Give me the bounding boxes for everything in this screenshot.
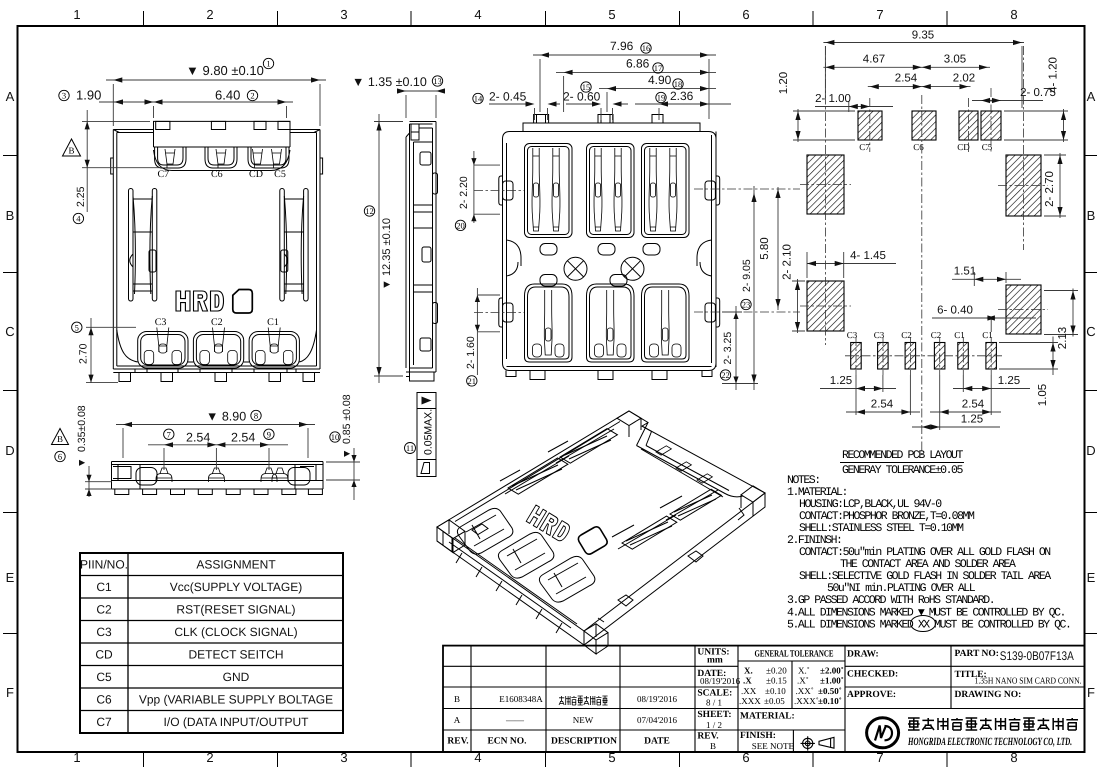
svg-text:C7: C7 <box>96 715 112 729</box>
svg-text:C: C <box>1086 324 1095 339</box>
svg-text:S139-0B07F13A: S139-0B07F13A <box>1000 649 1075 663</box>
svg-text:2.25: 2.25 <box>75 186 87 207</box>
svg-text:F: F <box>6 685 14 700</box>
svg-text:FINISH:: FINISH: <box>740 731 776 741</box>
svg-text:DRAWING NO:: DRAWING NO: <box>955 690 1022 700</box>
svg-text:DESCRIPTION: DESCRIPTION <box>551 737 617 747</box>
svg-text:X.: X. <box>744 666 753 676</box>
svg-text:4- 1.20: 4- 1.20 <box>1048 57 1060 93</box>
svg-text:C6: C6 <box>211 169 223 180</box>
svg-text:CHECKED:: CHECKED: <box>847 670 898 680</box>
svg-text:2- 0.45: 2- 0.45 <box>489 90 527 104</box>
svg-text:D: D <box>5 443 14 458</box>
svg-text:2: 2 <box>206 750 213 765</box>
svg-text:C1: C1 <box>267 317 279 328</box>
svg-text:08/19'2016: 08/19'2016 <box>700 676 741 686</box>
svg-text:7.96: 7.96 <box>610 39 634 53</box>
svg-text:C2: C2 <box>211 317 223 328</box>
svg-text:1.25: 1.25 <box>998 375 1020 387</box>
svg-text:C3: C3 <box>155 317 167 328</box>
svg-text:8: 8 <box>1010 7 1017 22</box>
svg-text:C5: C5 <box>274 169 286 180</box>
svg-text:0.05MAX.: 0.05MAX. <box>423 409 435 455</box>
svg-text:CD: CD <box>95 648 113 662</box>
svg-text:REV.: REV. <box>447 737 468 747</box>
svg-text:3: 3 <box>62 91 66 101</box>
svg-text:E1608348A: E1608348A <box>499 694 543 704</box>
svg-text:2- 2.10: 2- 2.10 <box>782 244 794 280</box>
svg-text:±0.10˚: ±0.10˚ <box>818 696 842 706</box>
svg-text:X.˚: X.˚ <box>798 666 810 676</box>
svg-text:7: 7 <box>876 7 883 22</box>
svg-text:Vcc(SUPPLY VOLTAGE): Vcc(SUPPLY VOLTAGE) <box>170 580 302 594</box>
svg-text:21: 21 <box>468 376 477 386</box>
svg-text:▼ 1.35 ±0.10: ▼ 1.35 ±0.10 <box>352 75 427 89</box>
svg-text:B: B <box>68 146 74 156</box>
svg-text:B: B <box>6 208 15 223</box>
svg-text:±0.15: ±0.15 <box>766 676 787 686</box>
svg-text:6: 6 <box>742 7 749 22</box>
svg-text:DRAW:: DRAW: <box>847 650 879 660</box>
svg-text:6.40: 6.40 <box>215 88 240 103</box>
svg-text:19: 19 <box>657 93 666 103</box>
svg-text:1 / 2: 1 / 2 <box>706 720 722 730</box>
svg-text:2- 1.00: 2- 1.00 <box>815 93 851 105</box>
svg-text:15: 15 <box>582 82 591 92</box>
svg-text:C: C <box>5 324 14 339</box>
svg-text:±0.50˚: ±0.50˚ <box>818 686 842 696</box>
svg-text:5.ALL DIMENSIONS MARKED XX: 5.ALL DIMENSIONS MARKED XX MUST BE CONTR… <box>787 619 1070 632</box>
svg-text:C6: C6 <box>913 142 924 152</box>
svg-text:2- 2.70: 2- 2.70 <box>1044 171 1056 207</box>
svg-text:▼ 12.35 ±0.10: ▼ 12.35 ±0.10 <box>381 218 393 290</box>
svg-text:.X: .X <box>743 676 752 686</box>
svg-text:1.35H NANO SIM CARD CONN.: 1.35H NANO SIM CARD CONN. <box>975 676 1082 686</box>
svg-text:GENERAY TOLERANCE±0.05: GENERAY TOLERANCE±0.05 <box>842 464 963 477</box>
svg-text:▼: ▼ <box>341 449 353 459</box>
svg-text:▼ 9.80 ±0.10: ▼ 9.80 ±0.10 <box>186 63 264 78</box>
svg-text:HONGRIDA ELECTRONIC TECHNOLOGY: HONGRIDA ELECTRONIC TECHNOLOGY CO, LTD. <box>907 736 1072 748</box>
svg-text:2- 1.60: 2- 1.60 <box>465 336 477 369</box>
svg-text:4- 1.45: 4- 1.45 <box>850 250 886 262</box>
svg-text:1.20: 1.20 <box>778 72 790 94</box>
svg-text:2- 3.25: 2- 3.25 <box>722 332 734 365</box>
svg-text:08/19'2016: 08/19'2016 <box>637 694 678 704</box>
svg-text:2.54: 2.54 <box>231 431 255 445</box>
svg-text:8 / 1: 8 / 1 <box>706 698 722 708</box>
svg-text:10: 10 <box>331 432 340 442</box>
svg-text:17: 17 <box>654 63 663 73</box>
svg-text:SEE NOTE: SEE NOTE <box>752 741 795 751</box>
svg-text:▼: ▼ <box>76 458 88 468</box>
svg-text:C6: C6 <box>96 693 112 707</box>
svg-text:1.05: 1.05 <box>1037 384 1049 406</box>
svg-text:MATERIAL:: MATERIAL: <box>740 712 795 722</box>
svg-text:4.90: 4.90 <box>648 73 672 87</box>
svg-text:3.05: 3.05 <box>944 54 966 66</box>
svg-text:A: A <box>454 715 461 725</box>
svg-text:C1: C1 <box>96 580 112 594</box>
svg-text:RECOMMENDED PCB LAYOUT: RECOMMENDED PCB LAYOUT <box>842 449 963 462</box>
svg-text:mm: mm <box>707 656 723 666</box>
svg-text:ASSIGNMENT: ASSIGNMENT <box>196 558 276 572</box>
svg-text:I/O (DATA INPUT/OUTPUT: I/O (DATA INPUT/OUTPUT <box>164 715 310 729</box>
svg-text:±0.05: ±0.05 <box>764 696 785 706</box>
svg-text:0.85 ±0.08: 0.85 ±0.08 <box>341 394 353 444</box>
svg-text:E: E <box>6 570 15 585</box>
svg-text:2- 2.20: 2- 2.20 <box>458 176 470 209</box>
svg-text:4: 4 <box>474 7 481 22</box>
svg-text:2.54: 2.54 <box>871 399 894 411</box>
svg-text:B: B <box>454 694 460 704</box>
svg-text:23: 23 <box>742 300 751 310</box>
svg-text:D: D <box>1086 443 1095 458</box>
svg-text:NEW: NEW <box>573 715 594 725</box>
svg-text:20: 20 <box>456 220 465 230</box>
svg-text:DETECT SEITCH: DETECT SEITCH <box>188 648 283 662</box>
svg-text:5: 5 <box>608 7 615 22</box>
svg-text:8: 8 <box>254 411 258 421</box>
svg-text:2.36: 2.36 <box>670 89 694 103</box>
svg-text:1.25: 1.25 <box>830 375 852 387</box>
svg-text:C2: C2 <box>96 603 112 617</box>
svg-text:16: 16 <box>642 43 651 53</box>
svg-text:2.54: 2.54 <box>895 73 918 85</box>
svg-text:.XXX: .XXX <box>739 696 761 706</box>
svg-text:1.25: 1.25 <box>961 414 983 426</box>
svg-text:.XX: .XX <box>741 686 757 696</box>
svg-text:RST(RESET SIGNAL): RST(RESET SIGNAL) <box>176 603 295 617</box>
svg-text:E: E <box>1087 570 1096 585</box>
svg-text:5.80: 5.80 <box>759 237 771 259</box>
svg-text:1: 1 <box>73 7 80 22</box>
svg-text:9.35: 9.35 <box>912 30 934 42</box>
svg-text:CLK (CLOCK SIGNAL): CLK (CLOCK SIGNAL) <box>174 625 297 639</box>
svg-text:Vpp (VARIABLE SUPPLY BOLTAGE: Vpp (VARIABLE SUPPLY BOLTAGE <box>139 693 333 707</box>
svg-text:.X˚: .X˚ <box>797 676 809 686</box>
svg-text:2.13: 2.13 <box>1057 327 1069 349</box>
svg-text:A: A <box>6 89 15 104</box>
svg-text:.XXX˚: .XXX˚ <box>794 696 819 706</box>
svg-text:22: 22 <box>721 370 730 380</box>
svg-text:11: 11 <box>406 443 414 453</box>
svg-text:13: 13 <box>433 76 442 86</box>
svg-text:6.86: 6.86 <box>626 57 650 71</box>
svg-text:PART NO:: PART NO: <box>955 649 999 659</box>
svg-text:C7: C7 <box>157 169 169 180</box>
svg-text:.XX˚: .XX˚ <box>796 686 814 696</box>
svg-text:1.90: 1.90 <box>76 88 101 103</box>
svg-text:12: 12 <box>365 206 374 216</box>
svg-text:2- 9.05: 2- 9.05 <box>741 259 753 292</box>
svg-text:GND: GND <box>223 670 250 684</box>
svg-text:2: 2 <box>250 91 254 101</box>
svg-text:GENERAL TOLERANCE: GENERAL TOLERANCE <box>755 650 834 660</box>
svg-text:±1.00˚: ±1.00˚ <box>820 676 844 686</box>
svg-text:C3: C3 <box>96 625 112 639</box>
svg-text:3: 3 <box>340 7 347 22</box>
svg-text:18: 18 <box>674 79 683 89</box>
svg-text:B: B <box>1087 208 1096 223</box>
svg-text:1.51: 1.51 <box>954 266 976 278</box>
svg-text:3: 3 <box>340 750 347 765</box>
svg-text:±0.10: ±0.10 <box>765 686 786 696</box>
svg-text:F: F <box>1087 685 1095 700</box>
svg-text:7: 7 <box>167 429 171 439</box>
svg-text:APPROVE:: APPROVE: <box>847 690 896 700</box>
svg-text:A: A <box>1087 89 1096 104</box>
svg-text:2.70: 2.70 <box>78 343 90 364</box>
svg-text:2.54: 2.54 <box>962 399 985 411</box>
svg-text:B: B <box>57 434 63 444</box>
svg-text:SHEET:: SHEET: <box>697 710 731 720</box>
svg-text:——: —— <box>505 715 525 725</box>
svg-text:PIIN/NO.: PIIN/NO. <box>80 558 128 572</box>
svg-text:±0.20: ±0.20 <box>766 666 787 676</box>
svg-text:B: B <box>710 741 716 751</box>
svg-text:▼ 8.90: ▼ 8.90 <box>206 410 246 424</box>
svg-text:2: 2 <box>206 7 213 22</box>
svg-text:C7: C7 <box>859 142 870 152</box>
svg-text:1: 1 <box>73 750 80 765</box>
svg-text:0.35±0.08: 0.35±0.08 <box>76 405 88 452</box>
svg-text:DATE: DATE <box>644 737 670 747</box>
svg-text:C5: C5 <box>96 670 112 684</box>
svg-text:9: 9 <box>267 429 271 439</box>
svg-text:14: 14 <box>474 94 483 104</box>
svg-text:4.67: 4.67 <box>863 54 885 66</box>
svg-text:CD: CD <box>249 169 263 180</box>
svg-text:±2.00˚: ±2.00˚ <box>820 666 844 676</box>
svg-text:3.GP PASSED ACCORD WITH RoHS S: 3.GP PASSED ACCORD WITH RoHS STANDARD. <box>787 594 994 607</box>
svg-text:REV.: REV. <box>697 732 718 742</box>
svg-text:1: 1 <box>266 59 270 69</box>
svg-text:6- 0.40: 6- 0.40 <box>937 305 973 317</box>
svg-text:07/04'2016: 07/04'2016 <box>637 715 678 725</box>
svg-text:ECN NO.: ECN NO. <box>487 737 526 747</box>
svg-text:6: 6 <box>58 452 62 462</box>
svg-text:2.02: 2.02 <box>953 73 975 85</box>
svg-text:5: 5 <box>75 322 79 332</box>
svg-text:2.54: 2.54 <box>186 431 210 445</box>
svg-text:4: 4 <box>76 214 81 224</box>
